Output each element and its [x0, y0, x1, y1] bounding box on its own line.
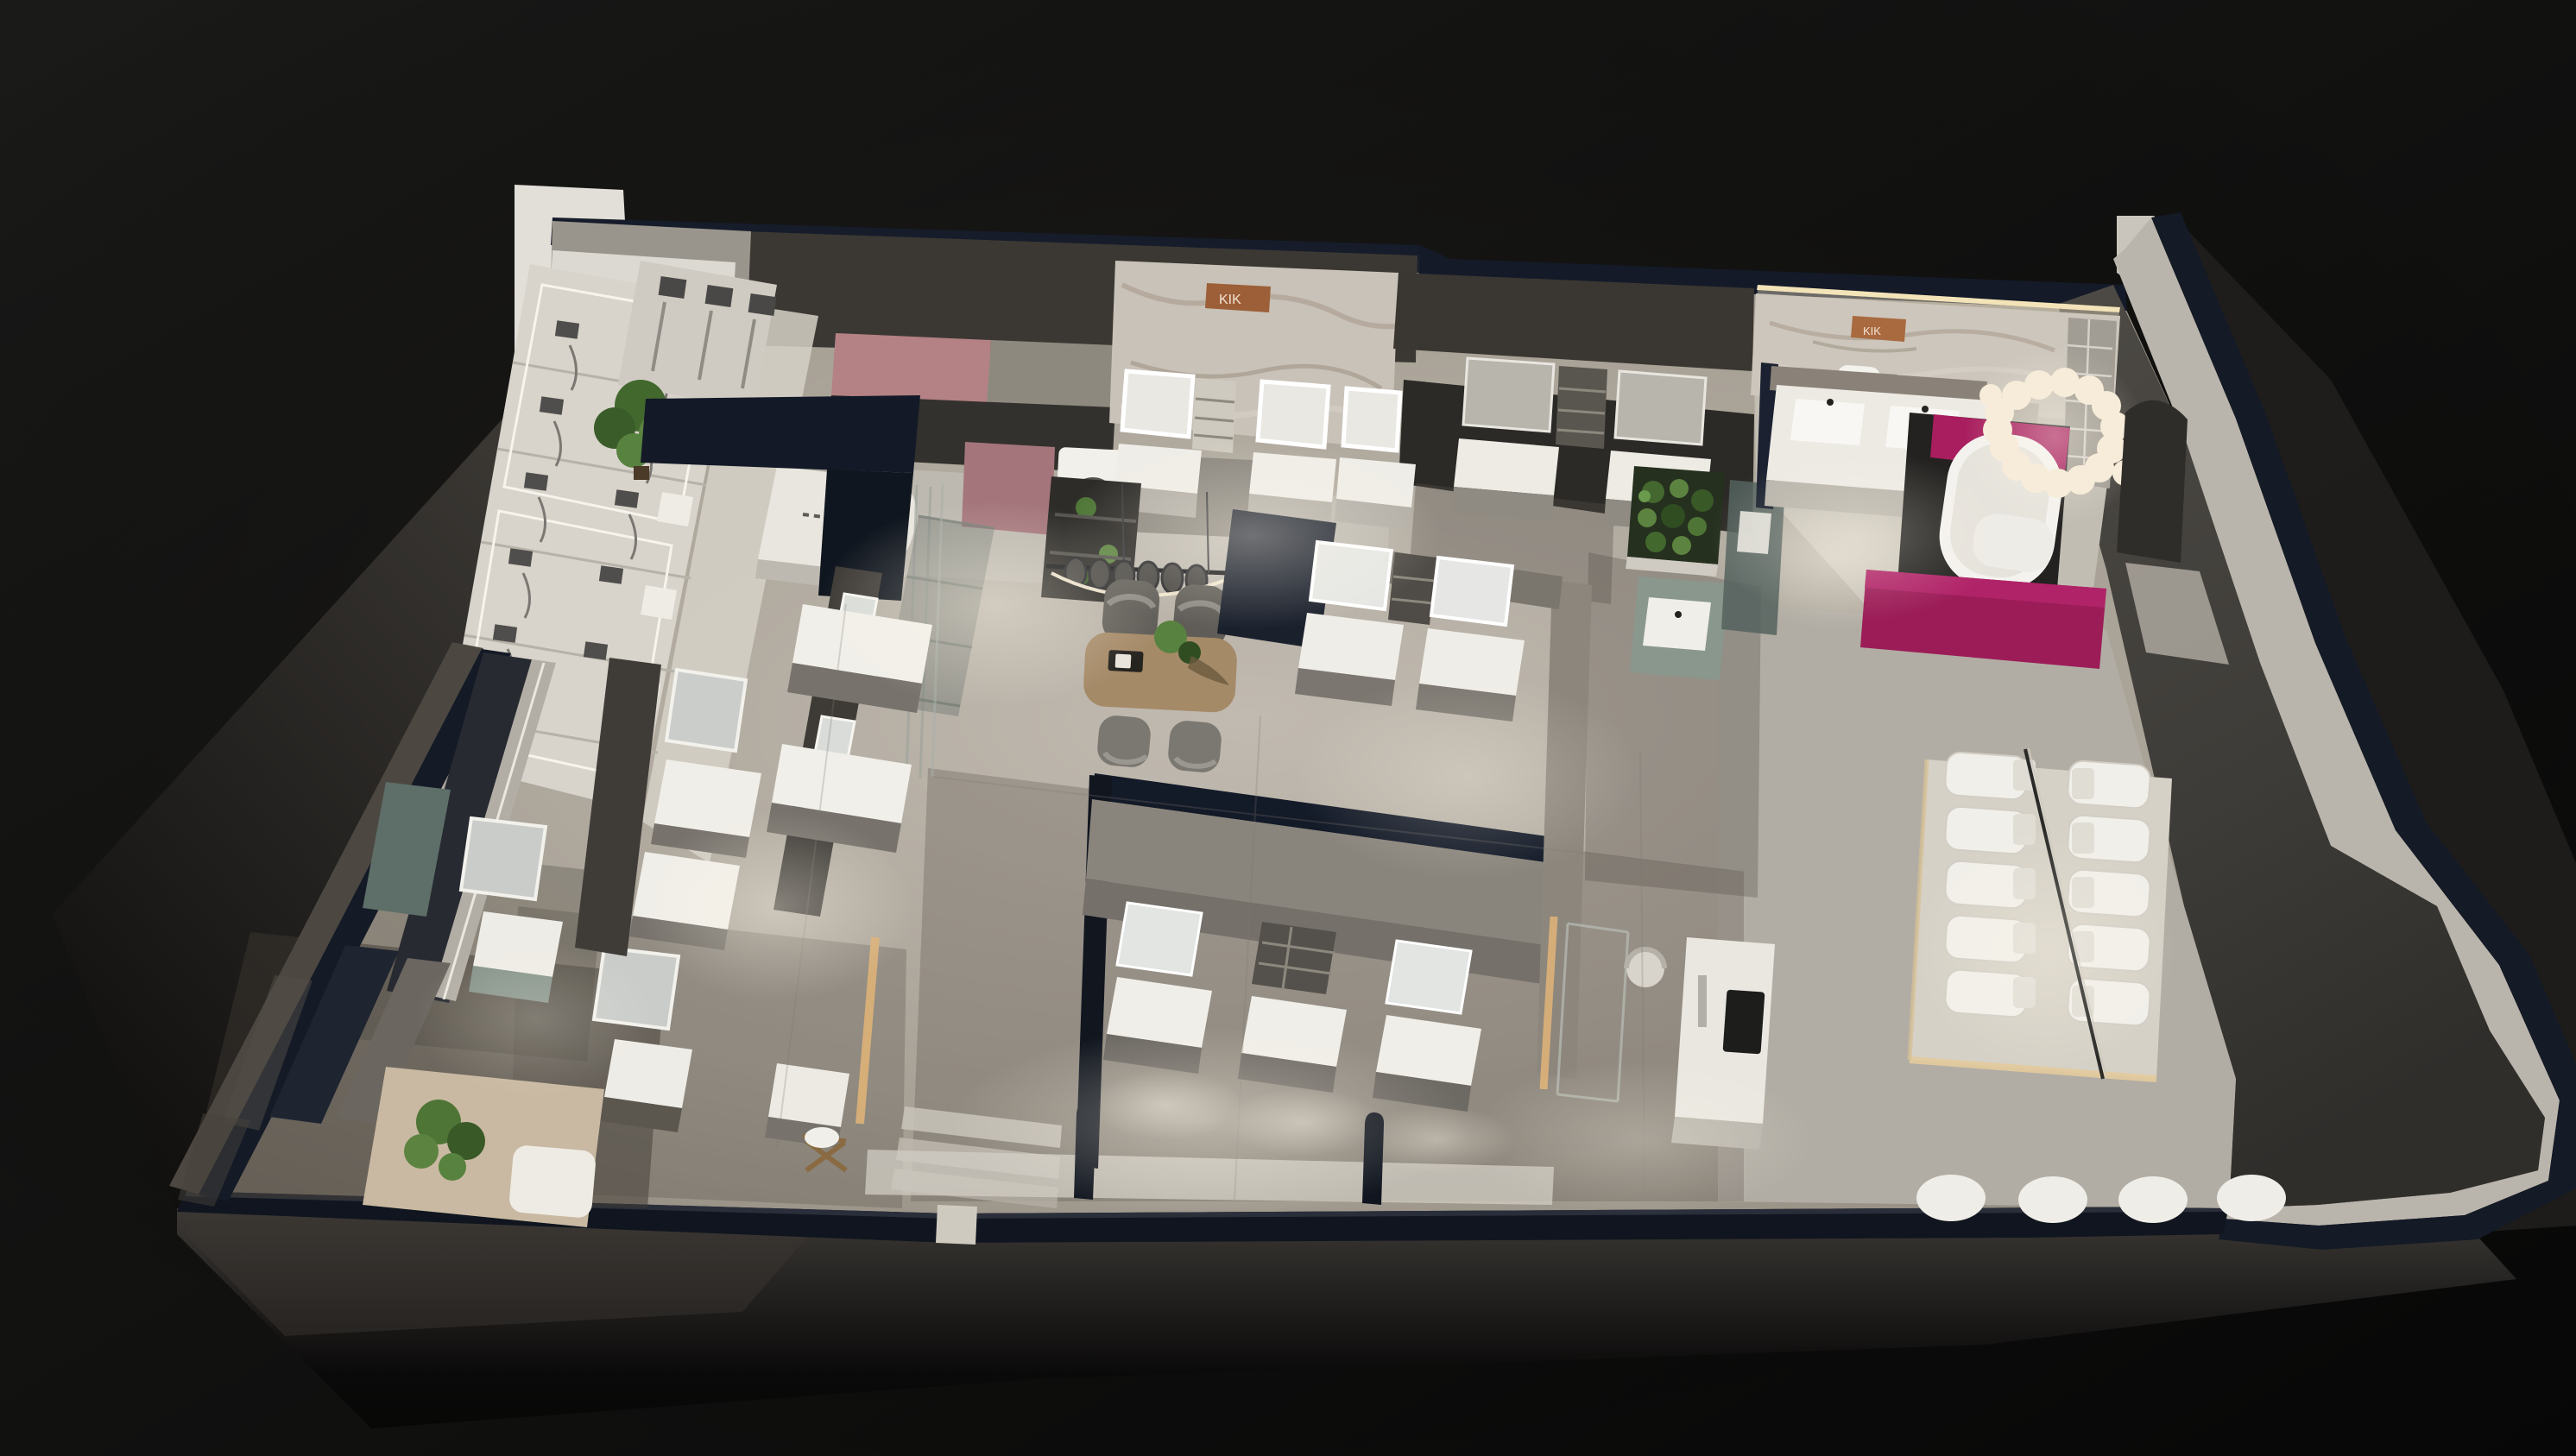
svg-text:KIK: KIK	[1863, 325, 1881, 337]
svg-text:KIK: KIK	[1219, 293, 1241, 307]
